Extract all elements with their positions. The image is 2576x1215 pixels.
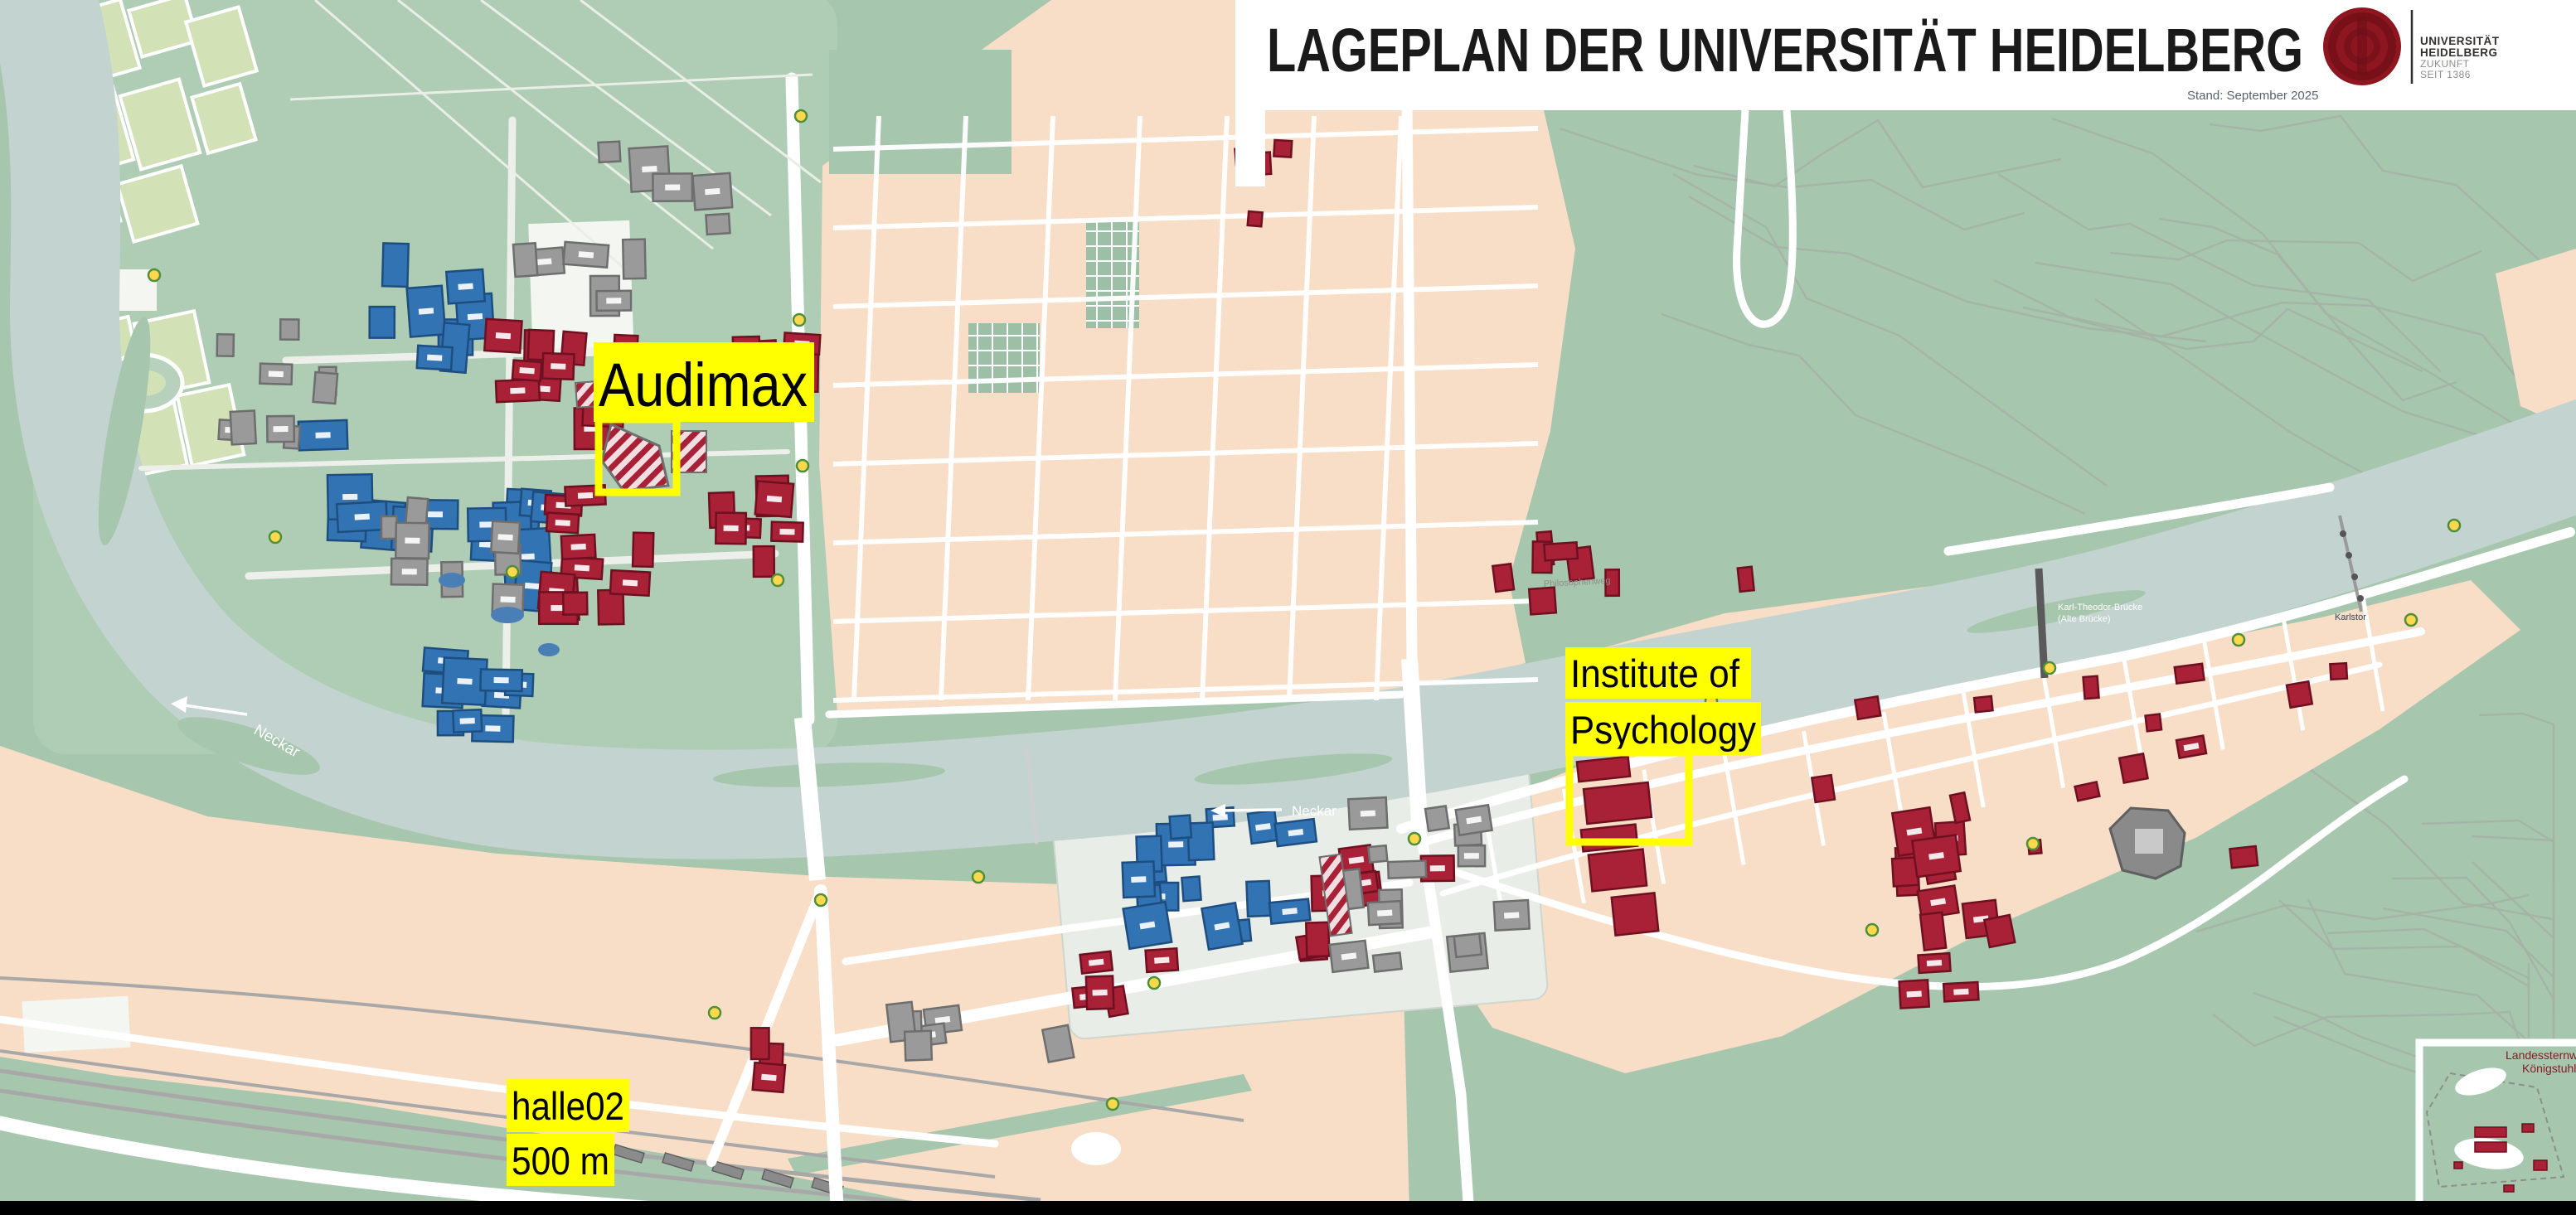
building [381, 516, 397, 539]
building [1920, 912, 1946, 951]
building-number-chip [1927, 960, 1942, 966]
building-number-chip [606, 298, 621, 303]
building-number-chip [536, 259, 552, 265]
building-number-chip [1907, 991, 1922, 998]
building [2287, 681, 2312, 707]
building [1492, 564, 1514, 592]
building-number-chip [405, 538, 420, 544]
bus-stop-icon [795, 110, 807, 122]
building-number-chip [458, 283, 473, 290]
building-number-chip [419, 307, 434, 314]
building-number-chip [1361, 811, 1375, 817]
map-date: Stand: September 2025 [2187, 89, 2318, 103]
building [1306, 922, 1329, 956]
building-number-chip [496, 332, 511, 339]
building-number-chip [1168, 841, 1183, 847]
building-number-chip [494, 677, 509, 683]
header-notch [1235, 110, 1265, 186]
building [1812, 775, 1835, 802]
building-number-chip [571, 544, 586, 550]
garden-pond [491, 607, 524, 623]
logo-text: UNIVERSITÄT [2420, 35, 2500, 47]
building [754, 546, 774, 577]
building [751, 1028, 769, 1059]
observatory-building [2475, 1142, 2506, 1152]
building-number-chip [457, 678, 472, 685]
footer-bar [0, 1201, 2576, 1215]
building [2146, 714, 2161, 732]
building-number-chip [1131, 876, 1146, 883]
building-number-chip [520, 554, 535, 560]
building [905, 1031, 932, 1061]
building [2330, 663, 2347, 680]
garden-pond [439, 573, 465, 588]
building [2119, 753, 2147, 782]
logo-text: SEIT 1386 [2420, 69, 2471, 80]
roundabout [1071, 1132, 1121, 1165]
castle-courtyard [2135, 829, 2163, 854]
flow-arrow-icon [1219, 810, 1282, 811]
alte-bruecke-label: Karl-Theodor-Brücke [2058, 603, 2142, 612]
alte-bruecke-label: (Alte Brücke) [2058, 614, 2111, 624]
bus-stop-icon [973, 871, 984, 883]
building [1544, 542, 1577, 560]
building-number-chip [1092, 990, 1107, 996]
psychology-building [1577, 757, 1630, 782]
bus-stop-icon [148, 269, 160, 281]
bus-stop-icon [797, 460, 808, 472]
bus-stop-icon [2233, 634, 2244, 646]
page-title: LAGEPLAN DER UNIVERSITÄT HEIDELBERG [1267, 16, 2303, 85]
building [1738, 567, 1754, 592]
bus-stop-icon [1409, 833, 1420, 845]
logo-text: HEIDELBERG [2420, 46, 2498, 59]
building-number-chip [460, 718, 475, 724]
building-number-chip [724, 525, 739, 531]
building-number-chip [500, 597, 515, 603]
dam-pier [2357, 595, 2364, 602]
dam-pier [2340, 530, 2346, 537]
building-number-chip [578, 492, 593, 499]
psychology-building [1612, 893, 1659, 935]
bus-stop-icon [2044, 662, 2055, 674]
building-number-chip [551, 363, 565, 370]
building [382, 243, 409, 287]
bus-stop-icon [2448, 520, 2460, 531]
building [1529, 588, 1556, 615]
building [1246, 881, 1270, 917]
building [1373, 952, 1402, 971]
bus-stop-icon [709, 1007, 720, 1019]
neckar-label: Neckar [1292, 803, 1337, 819]
building-number-chip [1430, 865, 1445, 871]
garden-pond [538, 643, 560, 656]
bus-stop-icon [2405, 614, 2417, 626]
building [1425, 806, 1449, 830]
building [633, 533, 653, 567]
bus-stop-icon [269, 531, 281, 543]
theodor-heuss-bridge [1409, 659, 1419, 822]
building-number-chip [468, 313, 483, 320]
building-number-chip [273, 426, 288, 432]
bus-stop-icon [1148, 977, 1160, 989]
road [1407, 99, 1412, 661]
building [230, 410, 256, 444]
building-number-chip [1953, 989, 1968, 995]
building-number-chip [1464, 853, 1479, 859]
building [1855, 696, 1880, 719]
building-number-chip [575, 564, 589, 571]
building-number-chip [779, 529, 794, 535]
bus-stop-icon [815, 894, 827, 906]
bus-stop-icon [1866, 924, 1878, 936]
building [2229, 846, 2258, 868]
allotments [829, 50, 1011, 174]
observatory-building [2475, 1127, 2506, 1137]
building-number-chip [315, 432, 330, 438]
building [623, 240, 645, 279]
building [280, 319, 298, 339]
building-number-chip [705, 188, 720, 195]
building-number-chip [427, 355, 442, 361]
building [217, 334, 234, 356]
institute-label-line2: Psychology [1570, 708, 1756, 752]
dam-pier [2346, 552, 2352, 559]
building-number-chip [579, 251, 594, 258]
building [1388, 861, 1426, 879]
building [1454, 934, 1482, 957]
building [1042, 1025, 1074, 1063]
psychology-building [1589, 850, 1647, 892]
halle02-label-line1: halle02 [512, 1084, 624, 1128]
building-number-chip [767, 496, 783, 502]
building-number-chip [665, 185, 680, 191]
building [1248, 211, 1263, 226]
halle02-label-line2: 500 m [512, 1139, 609, 1183]
bus-stop-icon [507, 566, 518, 578]
building-number-chip [342, 494, 357, 500]
building [1181, 877, 1201, 902]
building-number-chip [402, 569, 417, 574]
institute-label-line1: Institute of [1570, 651, 1740, 695]
observatory-building [2534, 1160, 2547, 1170]
building [313, 372, 338, 404]
building-number-chip [1377, 910, 1392, 917]
building-number-chip [1212, 814, 1227, 820]
dam-pier [2351, 574, 2358, 580]
campus-map: Landessternwarte Königstuhl Neckar Necka… [0, 0, 2576, 1215]
audimax-label: Audimax [599, 351, 808, 419]
bus-stop-icon [1107, 1098, 1118, 1110]
observatory-building [2454, 1162, 2462, 1169]
psychology-building [1581, 825, 1637, 852]
bus-stop-icon [772, 574, 783, 586]
building-number-chip [519, 367, 534, 374]
building [1170, 816, 1191, 839]
observatory-building [2522, 1124, 2534, 1132]
building [1974, 696, 1992, 712]
building-number-chip [355, 514, 370, 520]
building [1368, 845, 1387, 863]
bus-stop-icon [2027, 838, 2039, 850]
building-number-chip [555, 520, 570, 526]
building-number-chip [1154, 957, 1169, 964]
building [563, 593, 587, 615]
observatory-label: Landessternwarte [2506, 1048, 2576, 1062]
building [2175, 664, 2205, 684]
karlstor-label: Karlstor [2335, 612, 2366, 622]
psychology-building [1584, 782, 1652, 824]
building [370, 307, 395, 338]
building-number-chip [485, 725, 500, 731]
building [2084, 676, 2099, 699]
building [706, 214, 730, 235]
observatory-label: Königstuhl [2522, 1062, 2576, 1075]
building-number-chip [269, 371, 284, 378]
bus-stop-icon [793, 314, 805, 326]
logo-text: ZUKUNFT [2420, 58, 2470, 70]
building-number-chip [623, 579, 638, 586]
building-number-chip [510, 388, 525, 395]
building-number-chip [428, 511, 443, 517]
building-number-chip [1504, 912, 1519, 919]
observatory-inset: Landessternwarte Königstuhl [2419, 1043, 2576, 1208]
building [598, 142, 620, 162]
seal-detail [2357, 17, 2367, 75]
building [1273, 140, 1292, 157]
building-number-chip [642, 166, 657, 172]
building-number-chip [497, 534, 512, 540]
building [513, 243, 537, 277]
observatory-building [2504, 1185, 2514, 1192]
building [1984, 915, 2015, 947]
